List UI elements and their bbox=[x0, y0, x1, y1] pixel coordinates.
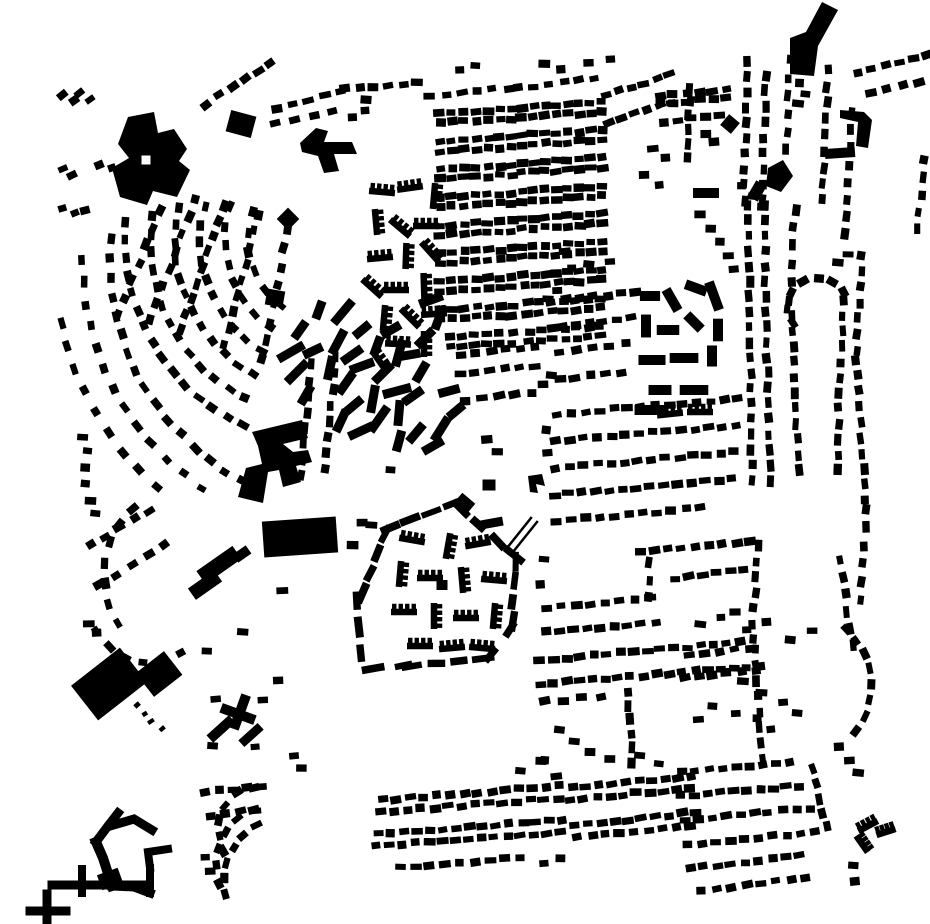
house-cluster bbox=[639, 130, 720, 189]
building-footprint-map bbox=[0, 0, 930, 924]
terrace-building bbox=[396, 178, 423, 193]
terrace-building bbox=[407, 638, 433, 650]
building-wing bbox=[148, 849, 168, 868]
terrace-building bbox=[399, 530, 427, 546]
terrace-block bbox=[854, 831, 875, 854]
house-row bbox=[818, 64, 832, 204]
house-cluster bbox=[77, 434, 101, 518]
building-block bbox=[483, 480, 496, 491]
house-cluster bbox=[455, 55, 615, 73]
house-row bbox=[683, 827, 821, 848]
house-row bbox=[436, 199, 516, 211]
house-row bbox=[840, 107, 855, 240]
terrace-block bbox=[402, 243, 414, 269]
house-row bbox=[550, 447, 739, 473]
house-row bbox=[659, 112, 725, 128]
house-row bbox=[445, 328, 519, 340]
large-building bbox=[840, 110, 872, 148]
terrace-building bbox=[431, 603, 443, 629]
terrace-building bbox=[481, 571, 508, 585]
house-row bbox=[434, 284, 516, 296]
house-cluster bbox=[848, 862, 860, 886]
terrace-building bbox=[369, 183, 396, 197]
house-cluster bbox=[834, 742, 865, 777]
terrace-block bbox=[481, 571, 508, 585]
terrace-block bbox=[399, 530, 427, 546]
terrace-block bbox=[388, 213, 415, 239]
apartment-slabs bbox=[635, 279, 724, 415]
terrace-block bbox=[360, 273, 387, 299]
house-row bbox=[433, 106, 518, 117]
building-block bbox=[437, 580, 448, 590]
house-row bbox=[436, 162, 517, 173]
terrace-block bbox=[490, 603, 504, 630]
terrace-block bbox=[464, 534, 492, 550]
house-cluster bbox=[693, 677, 803, 733]
building-wing bbox=[110, 819, 152, 830]
house-row bbox=[670, 566, 748, 583]
terrace-block bbox=[431, 603, 443, 629]
building-block bbox=[207, 715, 236, 743]
house-cluster bbox=[347, 519, 378, 550]
house-cluster bbox=[540, 726, 595, 765]
house-row bbox=[554, 369, 626, 383]
terrace-block bbox=[396, 178, 423, 193]
terrace-block bbox=[453, 610, 479, 622]
house-cluster bbox=[832, 251, 854, 266]
terrace-building bbox=[372, 208, 386, 235]
large-building bbox=[238, 420, 312, 503]
building-block bbox=[262, 516, 338, 557]
house-row bbox=[644, 556, 653, 602]
building-block bbox=[71, 648, 147, 721]
house-row bbox=[460, 389, 537, 405]
house-row bbox=[507, 552, 519, 632]
terrace-building bbox=[458, 566, 472, 593]
house-row bbox=[199, 57, 275, 111]
house-row bbox=[833, 295, 848, 475]
house-row bbox=[549, 422, 741, 446]
building-block bbox=[693, 188, 719, 198]
house-row bbox=[852, 251, 866, 356]
terrace-building bbox=[388, 213, 415, 239]
terrace-building bbox=[443, 533, 459, 561]
terrace-block bbox=[420, 273, 432, 299]
terrace-block bbox=[458, 566, 472, 593]
building-wing bbox=[112, 886, 150, 893]
curved-house-row bbox=[78, 255, 207, 493]
house-row bbox=[541, 594, 656, 613]
terrace-building bbox=[413, 218, 439, 230]
building-block bbox=[825, 147, 856, 159]
house-row bbox=[683, 645, 757, 659]
house-row bbox=[339, 78, 423, 92]
house-cluster bbox=[126, 690, 166, 733]
building-block bbox=[142, 156, 151, 165]
house-row bbox=[685, 851, 805, 873]
house-row bbox=[433, 272, 516, 284]
house-row bbox=[375, 795, 565, 816]
house-row bbox=[433, 228, 515, 240]
terrace-building bbox=[420, 273, 432, 299]
house-row bbox=[435, 133, 517, 146]
house-row bbox=[513, 75, 599, 92]
terrace-building bbox=[469, 639, 496, 653]
house-cluster bbox=[56, 87, 96, 106]
house-row bbox=[436, 116, 517, 127]
house-row bbox=[857, 504, 871, 605]
house-row bbox=[436, 216, 519, 230]
house-row bbox=[379, 497, 462, 535]
terrace-building bbox=[366, 249, 393, 263]
terrace-block bbox=[366, 249, 393, 263]
terrace-building bbox=[490, 603, 504, 630]
house-row bbox=[517, 136, 608, 149]
house-row bbox=[808, 763, 832, 832]
house-row bbox=[696, 873, 810, 894]
terrace-building bbox=[391, 604, 417, 616]
terrace-block bbox=[413, 218, 439, 230]
large-building bbox=[766, 160, 793, 192]
house-row bbox=[549, 474, 736, 499]
house-row bbox=[744, 200, 757, 485]
building-block bbox=[480, 517, 503, 530]
house-row bbox=[624, 688, 636, 769]
house-row bbox=[853, 49, 930, 77]
terrace-block bbox=[469, 639, 496, 653]
large-building bbox=[112, 112, 190, 205]
house-cluster bbox=[694, 211, 739, 274]
house-row bbox=[518, 183, 607, 195]
terrace-building bbox=[383, 282, 409, 294]
house-row bbox=[739, 56, 751, 207]
house-cluster bbox=[515, 752, 664, 868]
house-row bbox=[851, 355, 869, 504]
house-row bbox=[533, 636, 746, 664]
house-row bbox=[550, 503, 705, 526]
house-cluster bbox=[792, 79, 811, 108]
house-row bbox=[635, 537, 756, 556]
terrace-building bbox=[854, 831, 875, 854]
terrace-building bbox=[438, 639, 465, 653]
house-row bbox=[435, 311, 518, 323]
terrace-building bbox=[464, 534, 492, 550]
house-row bbox=[914, 155, 929, 234]
house-row bbox=[541, 619, 661, 636]
house-row bbox=[435, 254, 517, 267]
house-row bbox=[455, 363, 541, 377]
map-canvas bbox=[0, 0, 930, 924]
house-row bbox=[515, 107, 607, 122]
terrace-block bbox=[372, 208, 386, 235]
house-row bbox=[516, 125, 608, 138]
house-row bbox=[435, 143, 517, 156]
terrace-building bbox=[453, 610, 479, 622]
building-block bbox=[226, 110, 257, 138]
house-row bbox=[517, 209, 609, 224]
building-block bbox=[136, 651, 183, 697]
terrace-building bbox=[360, 273, 387, 299]
house-cluster bbox=[57, 159, 116, 217]
house-row bbox=[538, 693, 606, 706]
house-row bbox=[361, 661, 413, 675]
house-row bbox=[788, 310, 803, 476]
terrace-building bbox=[417, 570, 443, 582]
house-row bbox=[761, 200, 775, 487]
building-block bbox=[453, 493, 476, 515]
terrace-block bbox=[383, 282, 409, 294]
house-row bbox=[423, 85, 514, 100]
house-cluster bbox=[535, 425, 552, 589]
terrace-block bbox=[396, 561, 410, 588]
terrace-block bbox=[391, 604, 417, 616]
terrace-building bbox=[402, 243, 414, 269]
house-cluster bbox=[202, 587, 289, 684]
curved-house-row bbox=[840, 623, 875, 737]
terrace-block bbox=[438, 639, 465, 653]
terrace-block bbox=[369, 183, 396, 197]
terrace-building bbox=[396, 561, 410, 588]
house-row bbox=[401, 654, 495, 671]
large-building bbox=[300, 128, 357, 173]
large-building bbox=[528, 474, 545, 493]
house-cluster bbox=[348, 95, 372, 121]
house-row bbox=[354, 524, 392, 604]
house-row bbox=[434, 171, 518, 182]
terrace-block bbox=[417, 570, 443, 582]
building-block bbox=[238, 723, 263, 747]
terrace-block bbox=[407, 638, 433, 650]
house-row bbox=[865, 77, 926, 98]
curved-house-row bbox=[57, 317, 163, 493]
house-row bbox=[436, 302, 518, 314]
house-row bbox=[395, 854, 524, 870]
terrace-block bbox=[443, 533, 459, 561]
